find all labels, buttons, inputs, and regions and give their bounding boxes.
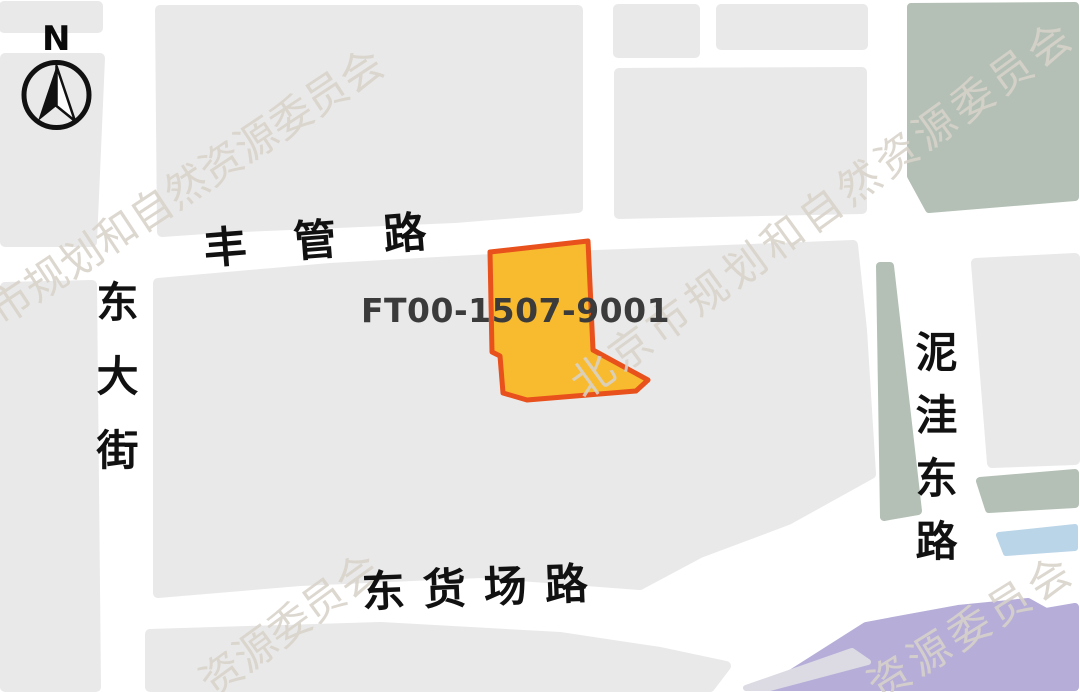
water-strip xyxy=(999,527,1075,553)
green-area xyxy=(980,473,1075,509)
compass-n-label: N xyxy=(42,22,70,56)
road-label-dongda-street: 东大街 xyxy=(93,280,135,502)
city-block xyxy=(160,10,578,232)
city-block xyxy=(976,258,1075,463)
parcel-id-label: FT00-1507-9001 xyxy=(361,294,670,327)
parcel-map: 北京市规划和自然资源委员会 北京市规划和自然资源委员会 资源委员会 资源委员会 … xyxy=(0,0,1080,692)
green-area xyxy=(911,6,1075,209)
city-block xyxy=(5,285,96,687)
road-label-niwa-east-road: 泥洼东路 xyxy=(912,330,954,582)
city-block xyxy=(150,627,726,687)
city-block xyxy=(618,9,695,53)
city-block xyxy=(721,9,863,45)
road-label-donghuochang-road: 东货场路 xyxy=(361,563,606,615)
city-block xyxy=(619,72,862,214)
